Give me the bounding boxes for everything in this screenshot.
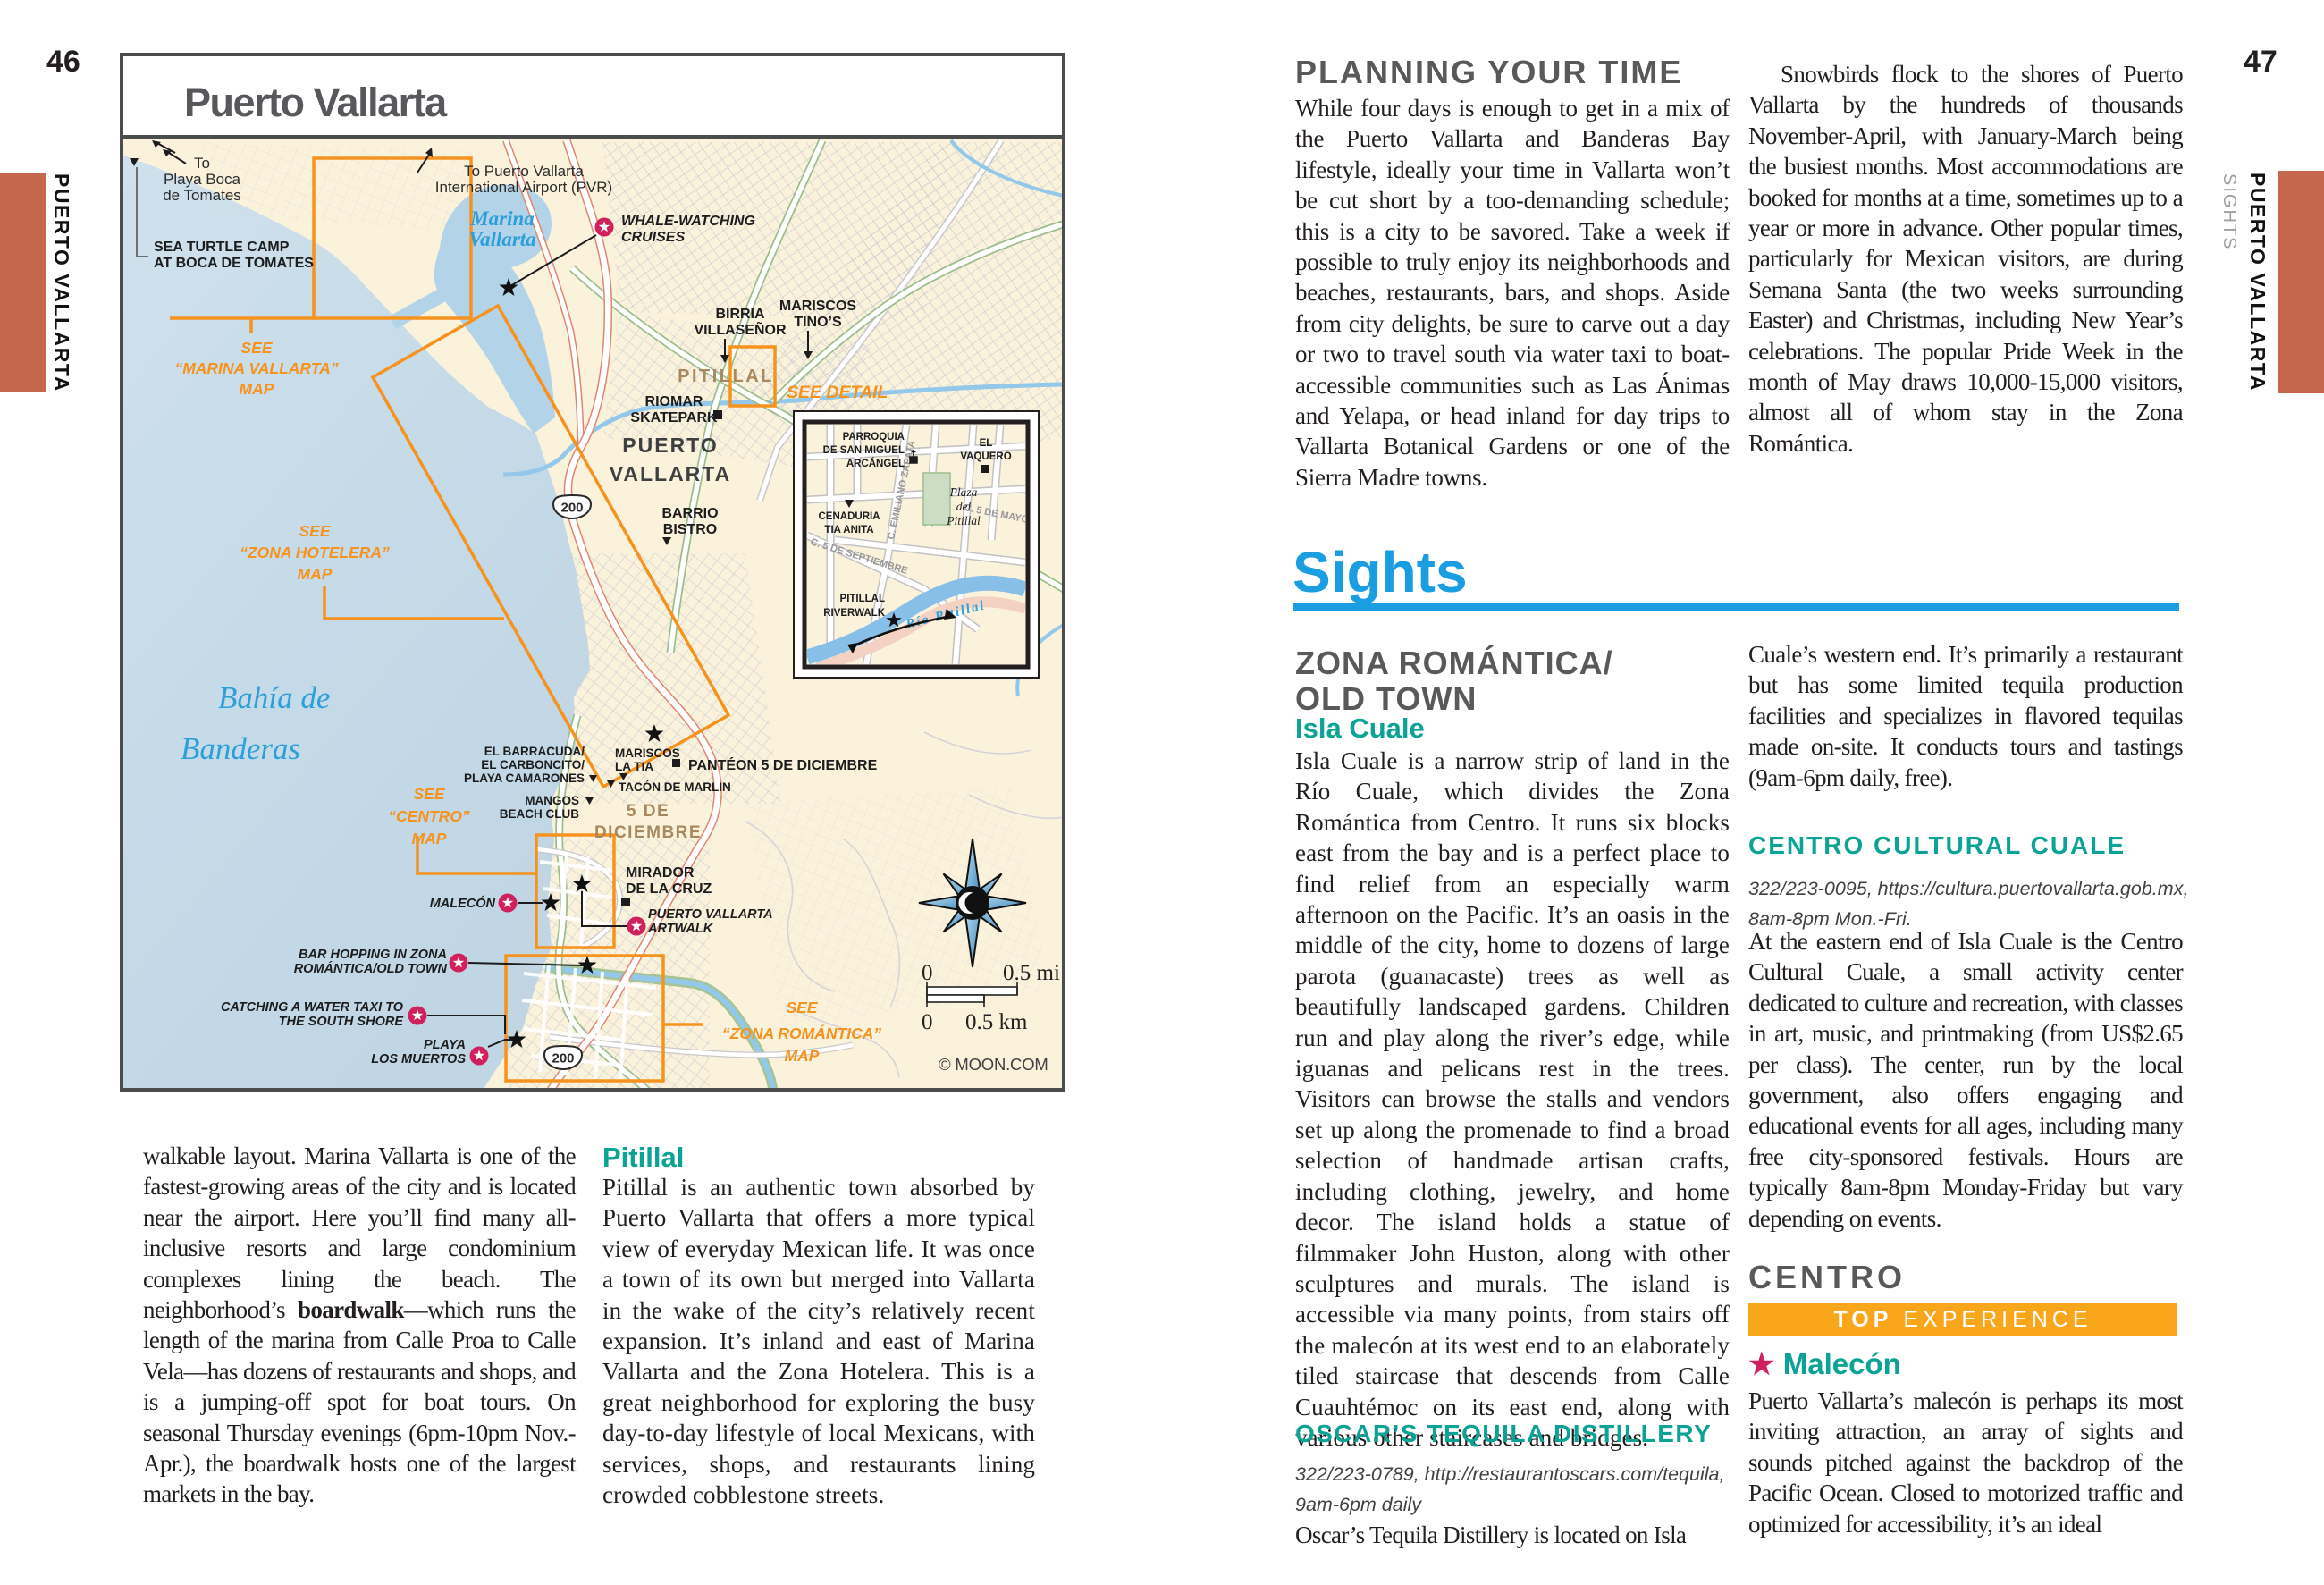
svg-text:VILLASEÑOR: VILLASEÑOR: [694, 320, 787, 338]
svg-text:EL: EL: [980, 438, 993, 449]
svg-text:PLAYA CAMARONES: PLAYA CAMARONES: [464, 771, 585, 785]
svg-text:TIA ANITA: TIA ANITA: [824, 525, 873, 535]
svg-text:Banderas: Banderas: [181, 731, 300, 766]
svg-text:0: 0: [922, 961, 933, 985]
svg-text:LOS MUERTOS: LOS MUERTOS: [371, 1052, 466, 1067]
svg-text:“CENTRO”: “CENTRO”: [388, 807, 470, 825]
svg-text:RIOMAR: RIOMAR: [645, 394, 703, 409]
svg-text:MAP: MAP: [298, 565, 333, 583]
svg-text:EL BARRACUDA/: EL BARRACUDA/: [484, 745, 585, 758]
svg-text:PLAYA: PLAYA: [424, 1038, 466, 1052]
svg-text:200: 200: [552, 1051, 574, 1067]
svg-text:SEE: SEE: [299, 522, 331, 540]
svg-text:TINO’S: TINO’S: [794, 315, 842, 330]
svg-text:© MOON.COM: © MOON.COM: [939, 1055, 1048, 1074]
svg-text:BISTRO: BISTRO: [663, 522, 717, 537]
svg-text:SEE: SEE: [413, 785, 445, 803]
svg-text:“ZONA ROMÁNTICA”: “ZONA ROMÁNTICA”: [722, 1024, 881, 1042]
svg-text:200: 200: [560, 501, 583, 516]
svg-text:SEE: SEE: [786, 999, 818, 1016]
svg-text:BAR HOPPING IN ZONA: BAR HOPPING IN ZONA: [299, 948, 447, 962]
svg-text:To: To: [194, 155, 210, 172]
svg-text:PITILLAL: PITILLAL: [840, 594, 885, 604]
svg-text:Vallarta: Vallarta: [468, 228, 535, 250]
svg-text:SEE: SEE: [240, 339, 273, 357]
svg-text:MAP: MAP: [412, 830, 447, 847]
svg-text:“ZONA HOTELERA”: “ZONA HOTELERA”: [240, 544, 390, 561]
svg-text:PARROQUIA: PARROQUIA: [843, 432, 905, 443]
svg-text:AT BOCA DE TOMATES: AT BOCA DE TOMATES: [154, 256, 314, 271]
svg-text:BIRRIA: BIRRIA: [715, 307, 765, 322]
svg-text:MIRADOR: MIRADOR: [626, 865, 695, 881]
svg-text:del: del: [956, 500, 972, 513]
svg-text:PUERTO VALLARTA: PUERTO VALLARTA: [648, 907, 773, 922]
svg-text:EL CARBONCITO/: EL CARBONCITO/: [481, 758, 585, 771]
svg-text:VALLARTA: VALLARTA: [610, 462, 732, 485]
svg-text:PITILLAL: PITILLAL: [678, 367, 774, 386]
svg-text:THE SOUTH SHORE: THE SOUTH SHORE: [279, 1015, 405, 1029]
svg-text:RIVERWALK: RIVERWALK: [823, 608, 885, 619]
svg-text:de Tomates: de Tomates: [163, 187, 241, 204]
svg-text:To Puerto Vallarta: To Puerto Vallarta: [464, 163, 584, 180]
svg-text:Bahía de: Bahía de: [218, 680, 330, 715]
svg-text:BARRIO: BARRIO: [661, 506, 718, 521]
svg-text:MAP: MAP: [785, 1047, 820, 1065]
svg-text:CRUISES: CRUISES: [621, 230, 685, 245]
svg-text:DICIEMBRE: DICIEMBRE: [594, 823, 702, 842]
svg-text:CENADURIA: CENADURIA: [819, 511, 880, 522]
svg-text:MARISCOS: MARISCOS: [779, 299, 857, 314]
svg-text:MANGOS: MANGOS: [525, 794, 579, 807]
svg-text:PANTÉON 5 DE DICIEMBRE: PANTÉON 5 DE DICIEMBRE: [688, 756, 878, 773]
svg-text:0.5 km: 0.5 km: [965, 1010, 1028, 1034]
svg-text:MARISCOS: MARISCOS: [615, 746, 680, 760]
svg-text:SEA TURTLE CAMP: SEA TURTLE CAMP: [154, 240, 290, 255]
svg-text:ARCÁNGEL: ARCÁNGEL: [846, 458, 905, 469]
svg-text:SEE DETAIL: SEE DETAIL: [787, 383, 888, 402]
svg-text:BEACH CLUB: BEACH CLUB: [500, 807, 579, 821]
svg-text:DE SAN MIGUEL: DE SAN MIGUEL: [823, 445, 905, 456]
svg-text:Puerto Vallarta: Puerto Vallarta: [184, 80, 448, 125]
svg-text:CATCHING A WATER TAXI TO: CATCHING A WATER TAXI TO: [221, 1000, 404, 1015]
svg-text:0: 0: [922, 1010, 933, 1034]
svg-text:SKATEPARK: SKATEPARK: [630, 410, 718, 426]
svg-text:0.5 mi: 0.5 mi: [1003, 961, 1060, 985]
svg-text:TACÓN DE MARLIN: TACÓN DE MARLIN: [619, 780, 731, 794]
svg-text:PUERTO: PUERTO: [622, 434, 718, 457]
svg-text:5 DE: 5 DE: [627, 802, 669, 821]
svg-text:Marina: Marina: [469, 207, 535, 230]
svg-text:DE LA CRUZ: DE LA CRUZ: [626, 881, 712, 897]
svg-text:Pitillal: Pitillal: [946, 514, 981, 527]
svg-text:Playa Boca: Playa Boca: [164, 171, 241, 188]
svg-text:International Airport (PVR): International Airport (PVR): [435, 179, 612, 196]
svg-text:“MARINA VALLARTA”: “MARINA VALLARTA”: [174, 359, 338, 377]
svg-text:WHALE-WATCHING: WHALE-WATCHING: [621, 214, 755, 229]
svg-text:MAP: MAP: [240, 380, 274, 398]
svg-text:VAQUERO: VAQUERO: [960, 451, 1011, 462]
svg-text:ROMÁNTICA/OLD TOWN: ROMÁNTICA/OLD TOWN: [294, 961, 448, 976]
svg-text:ARTWALK: ARTWALK: [647, 922, 714, 936]
svg-text:MALECÓN: MALECÓN: [430, 895, 496, 911]
svg-text:Plaza: Plaza: [949, 485, 978, 499]
svg-text:LA TIA: LA TIA: [615, 760, 653, 773]
